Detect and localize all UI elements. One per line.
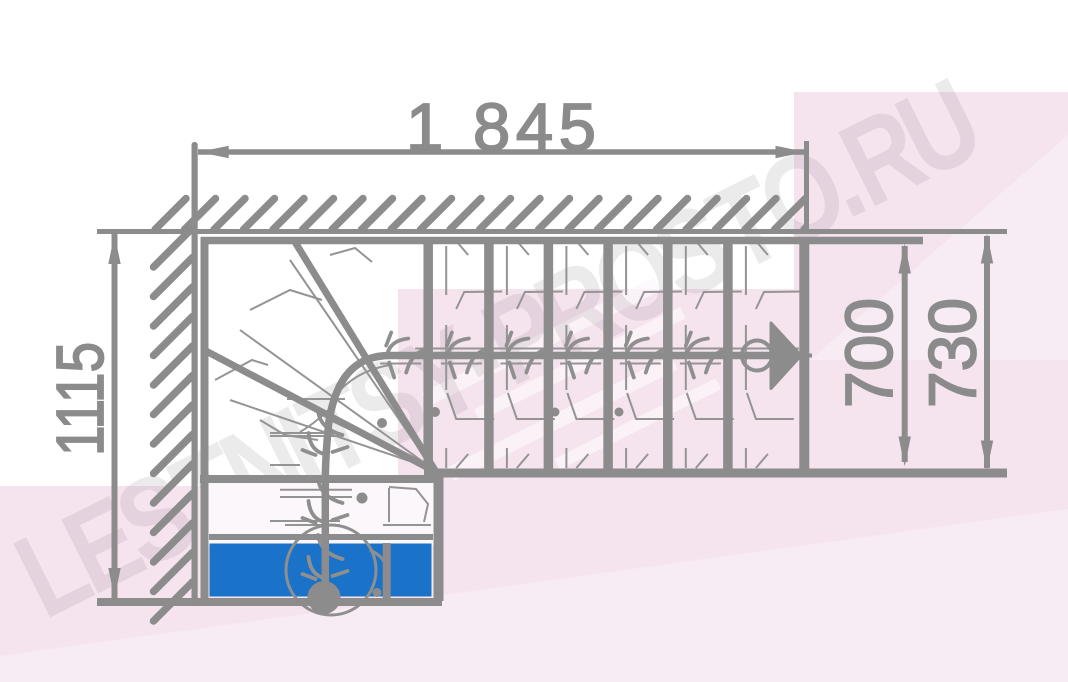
svg-text:1 845: 1 845 (406, 90, 596, 165)
svg-text:700: 700 (832, 298, 907, 408)
svg-text:1115: 1115 (43, 342, 118, 456)
svg-text:730: 730 (916, 298, 991, 408)
